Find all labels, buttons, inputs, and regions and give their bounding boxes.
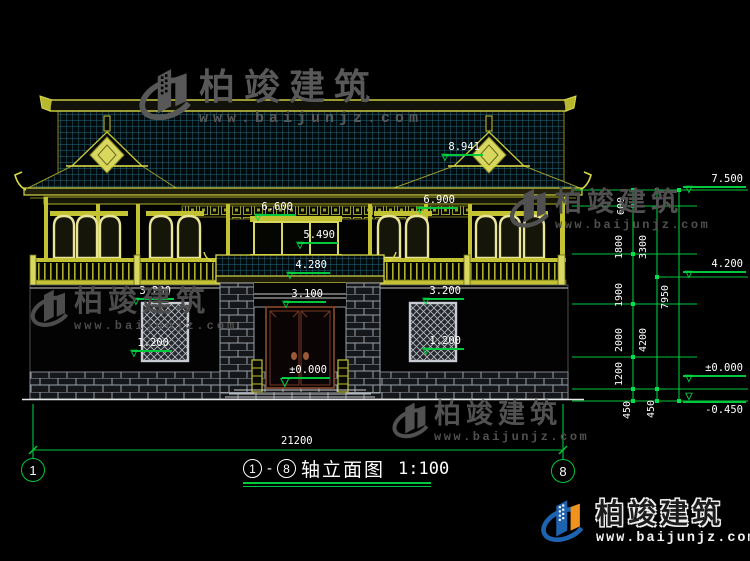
title-name: 轴立面图 (301, 455, 385, 482)
elev-canopy: 4.280▽ (288, 259, 330, 274)
site-logo: 柏竣建筑 www.baijunjz.com (536, 492, 750, 554)
dim-2000: 2000 (614, 318, 625, 362)
elevation-triangle-icon: ▽ (441, 151, 449, 164)
dim-450-mid: 450 (646, 399, 657, 418)
logo-brand: 柏竣建筑 (596, 500, 750, 528)
logo-building-icon (536, 492, 590, 554)
elevation-triangle-icon: ▽ (280, 374, 290, 390)
dim-600: 600 (616, 192, 627, 220)
elevation-triangle-icon: ▽ (254, 211, 262, 224)
level-minus-450: ▽-0.450 (683, 401, 746, 416)
axis-bubble-8: 8 (551, 459, 575, 483)
elevation-triangle-icon: ▽ (282, 298, 290, 311)
drawing-title: 1 - 8 轴立面图 1:100 (243, 455, 449, 482)
elev-door-head: 3.100▽ (284, 288, 326, 303)
title-underline-thin (243, 486, 431, 487)
axis-bubble-1: 1 (21, 458, 45, 482)
elevation-triangle-icon: ▽ (422, 295, 430, 308)
title-underline-thick (243, 482, 431, 484)
title-axis-from-bubble: 1 (243, 459, 262, 478)
elevation-drawing-canvas: 8.941▽ 6.600▽ 6.900▽ 5.490▽ 4.280▽ 3.100… (0, 0, 750, 561)
elevation-triangle-icon: ▽ (416, 204, 424, 217)
right-lattice-window (410, 303, 456, 361)
dim-1800: 1800 (614, 224, 625, 270)
elev-beam-left: 6.600▽ (256, 201, 296, 216)
dim-1200: 1200 (614, 359, 625, 389)
title-scale: 1:100 (398, 459, 449, 479)
elev-window-sill-right: 1.200▽ (424, 335, 464, 350)
dim-1900: 1900 (614, 271, 625, 319)
dimension-ticks (631, 188, 681, 403)
elev-window-sill-left: 1.200▽ (132, 337, 172, 352)
level-7500: 7.500▽ (683, 173, 746, 188)
elevation-triangle-icon: ▽ (296, 239, 304, 252)
elevation-triangle-icon: ▽ (286, 269, 294, 282)
elevation-triangle-icon: ▽ (130, 347, 138, 360)
title-dash: - (267, 460, 272, 477)
elevation-triangle-icon: ▽ (685, 390, 693, 403)
elevation-triangle-icon: ▽ (685, 183, 693, 196)
elev-zero-door: ±0.000▽ (282, 364, 330, 379)
dim-7950: 7950 (660, 275, 671, 319)
level-zero: ±0.000▽ (683, 362, 746, 377)
elev-window-head-right: 3.200▽ (424, 285, 464, 300)
dim-total-width: 21200 (281, 435, 313, 447)
dim-3300: 3300 (638, 224, 649, 270)
dim-450-inner: 450 (622, 400, 633, 419)
elevation-triangle-icon: ▽ (685, 268, 693, 281)
logo-site: www.baijunjz.com (596, 532, 750, 546)
elevation-triangle-icon: ▽ (132, 295, 140, 308)
elevation-triangle-icon: ▽ (422, 345, 430, 358)
elev-ridge: 8.941▽ (443, 141, 483, 156)
elev-transom: 5.490▽ (298, 229, 338, 244)
elev-beam-right: 6.900▽ (418, 194, 458, 209)
dim-4200: 4200 (638, 318, 649, 362)
elev-window-head-left: 3.200▽ (134, 285, 174, 300)
left-lattice-window (142, 303, 188, 361)
title-axis-to-bubble: 8 (277, 459, 296, 478)
elevation-triangle-icon: ▽ (685, 372, 693, 385)
level-4200: 4.200▽ (683, 258, 746, 273)
